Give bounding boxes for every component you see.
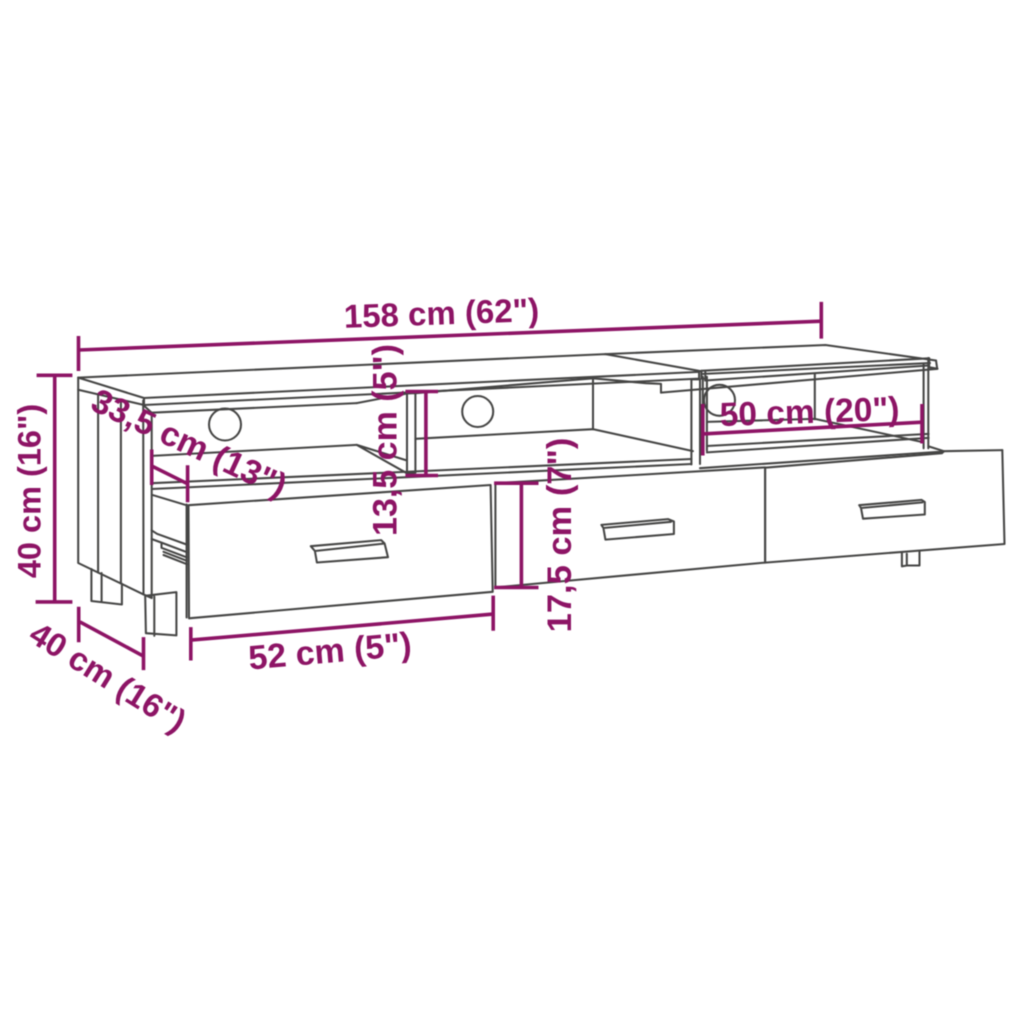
svg-text:17,5 cm (7"): 17,5 cm (7") bbox=[541, 438, 579, 633]
svg-text:13,5 cm (5"): 13,5 cm (5") bbox=[367, 344, 405, 536]
svg-text:158 cm (62"): 158 cm (62") bbox=[343, 291, 540, 335]
svg-text:40 cm (16"): 40 cm (16") bbox=[12, 404, 48, 578]
svg-text:50 cm (20"): 50 cm (20") bbox=[719, 391, 900, 434]
